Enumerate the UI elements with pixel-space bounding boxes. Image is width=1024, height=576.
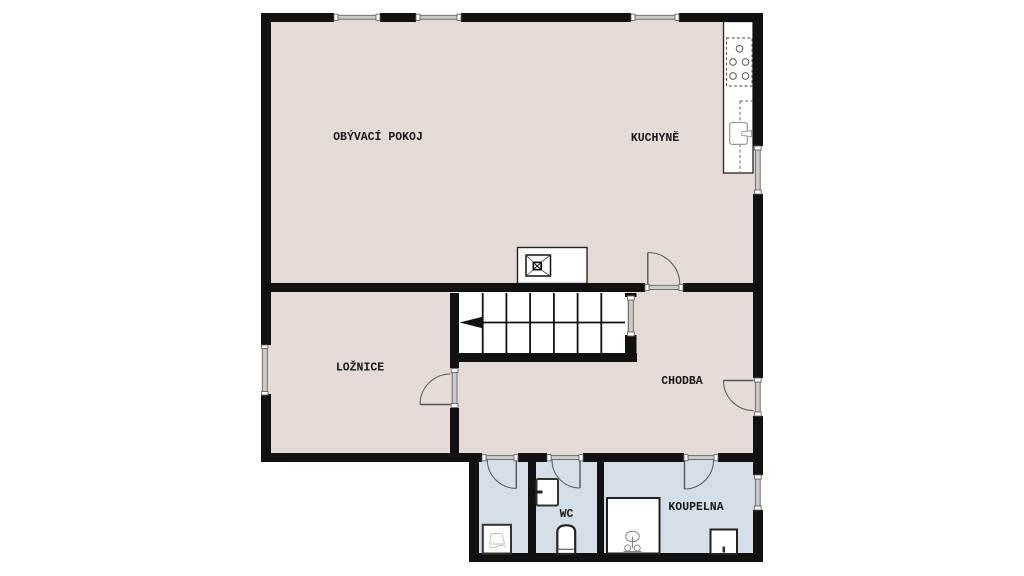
svg-text:WC: WC (560, 508, 574, 521)
svg-text:KOUPELNA: KOUPELNA (668, 501, 723, 514)
svg-text:CHODBA: CHODBA (661, 375, 703, 388)
svg-text:OBÝVACÍ POKOJ: OBÝVACÍ POKOJ (333, 130, 423, 144)
svg-text:LOŽNICE: LOŽNICE (336, 361, 384, 375)
svg-text:KUCHYNĚ: KUCHYNĚ (631, 131, 679, 145)
